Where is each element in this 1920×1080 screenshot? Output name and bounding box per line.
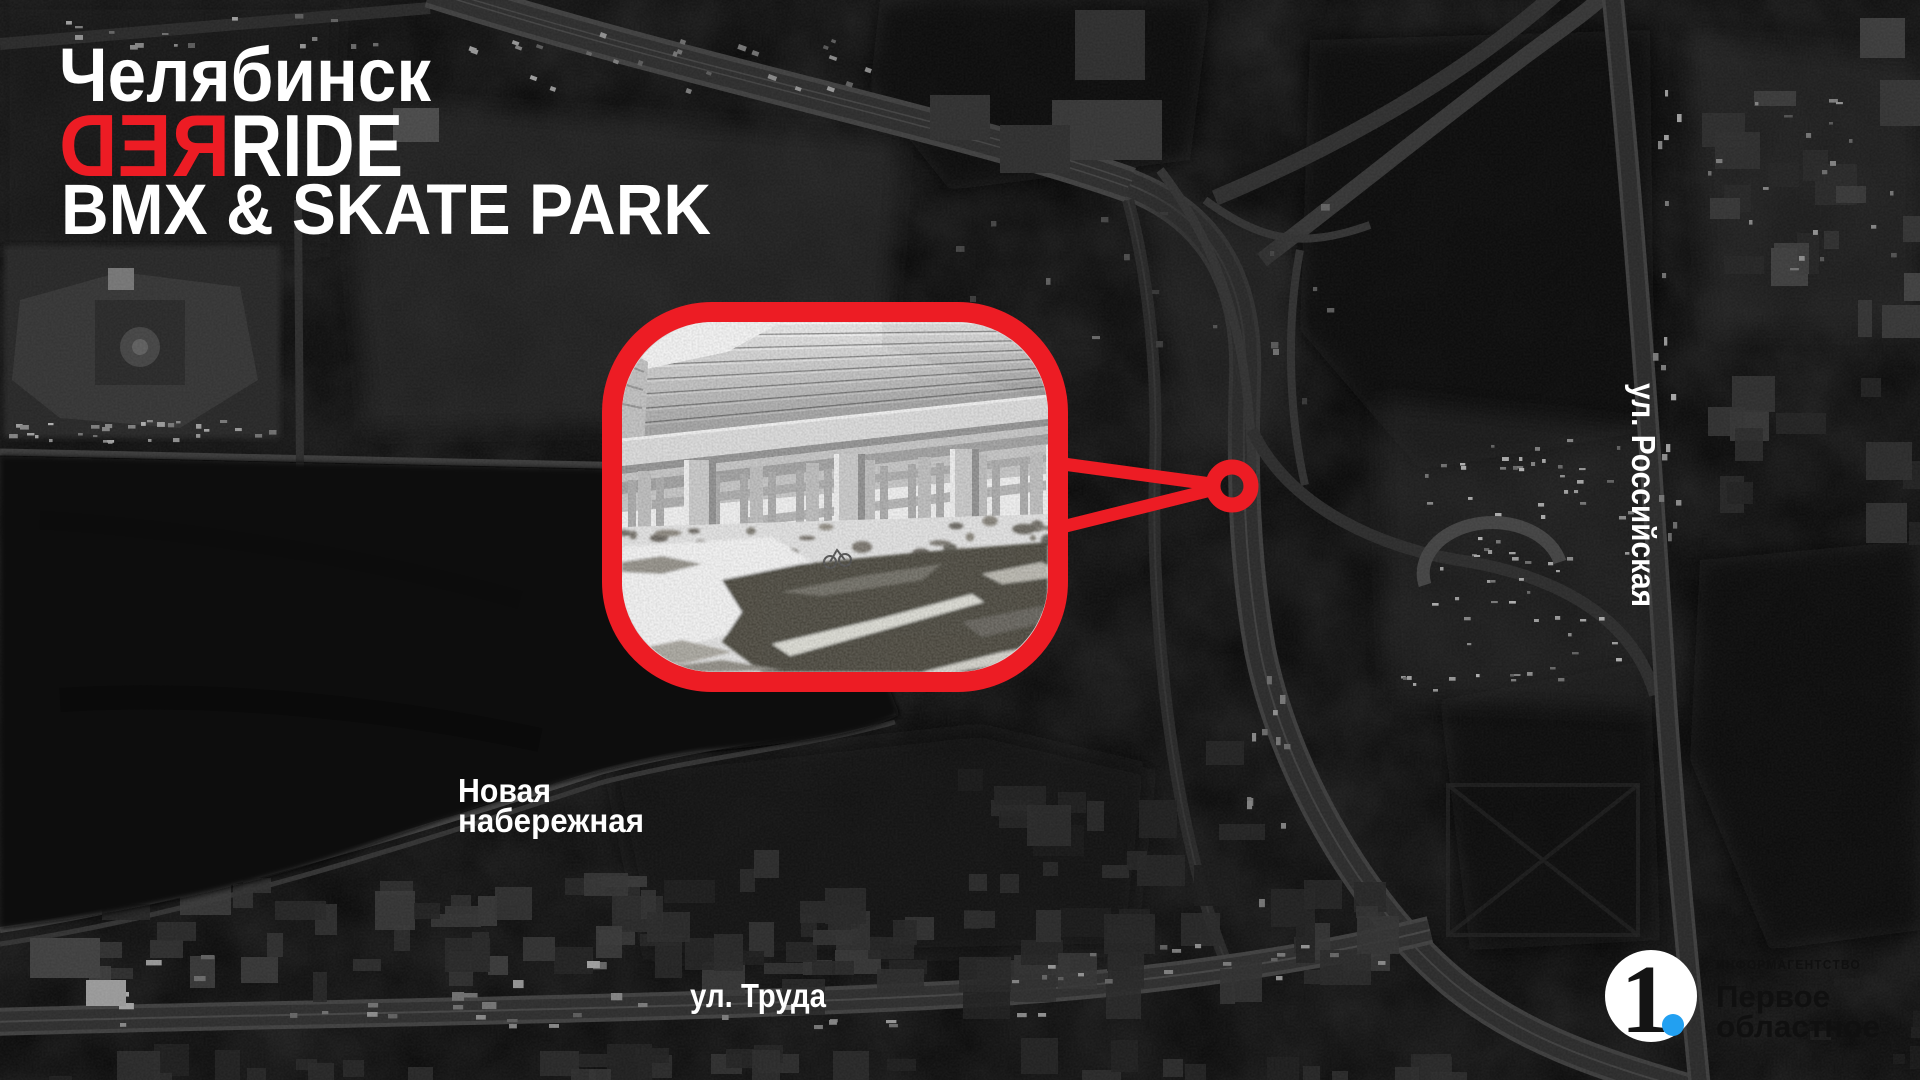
svg-text:ул. Труда: ул. Труда — [690, 977, 827, 1014]
svg-text:ИНФОРМАГЕНТСТВО: ИНФОРМАГЕНТСТВО — [1716, 957, 1861, 972]
svg-text:BMX & SKATE PARK: BMX & SKATE PARK — [61, 171, 711, 250]
svg-text:областное: областное — [1716, 1009, 1880, 1044]
svg-text:набережная: набережная — [458, 802, 644, 839]
svg-text:1: 1 — [1621, 946, 1670, 1053]
svg-text:ул. Российская: ул. Российская — [1625, 383, 1662, 607]
